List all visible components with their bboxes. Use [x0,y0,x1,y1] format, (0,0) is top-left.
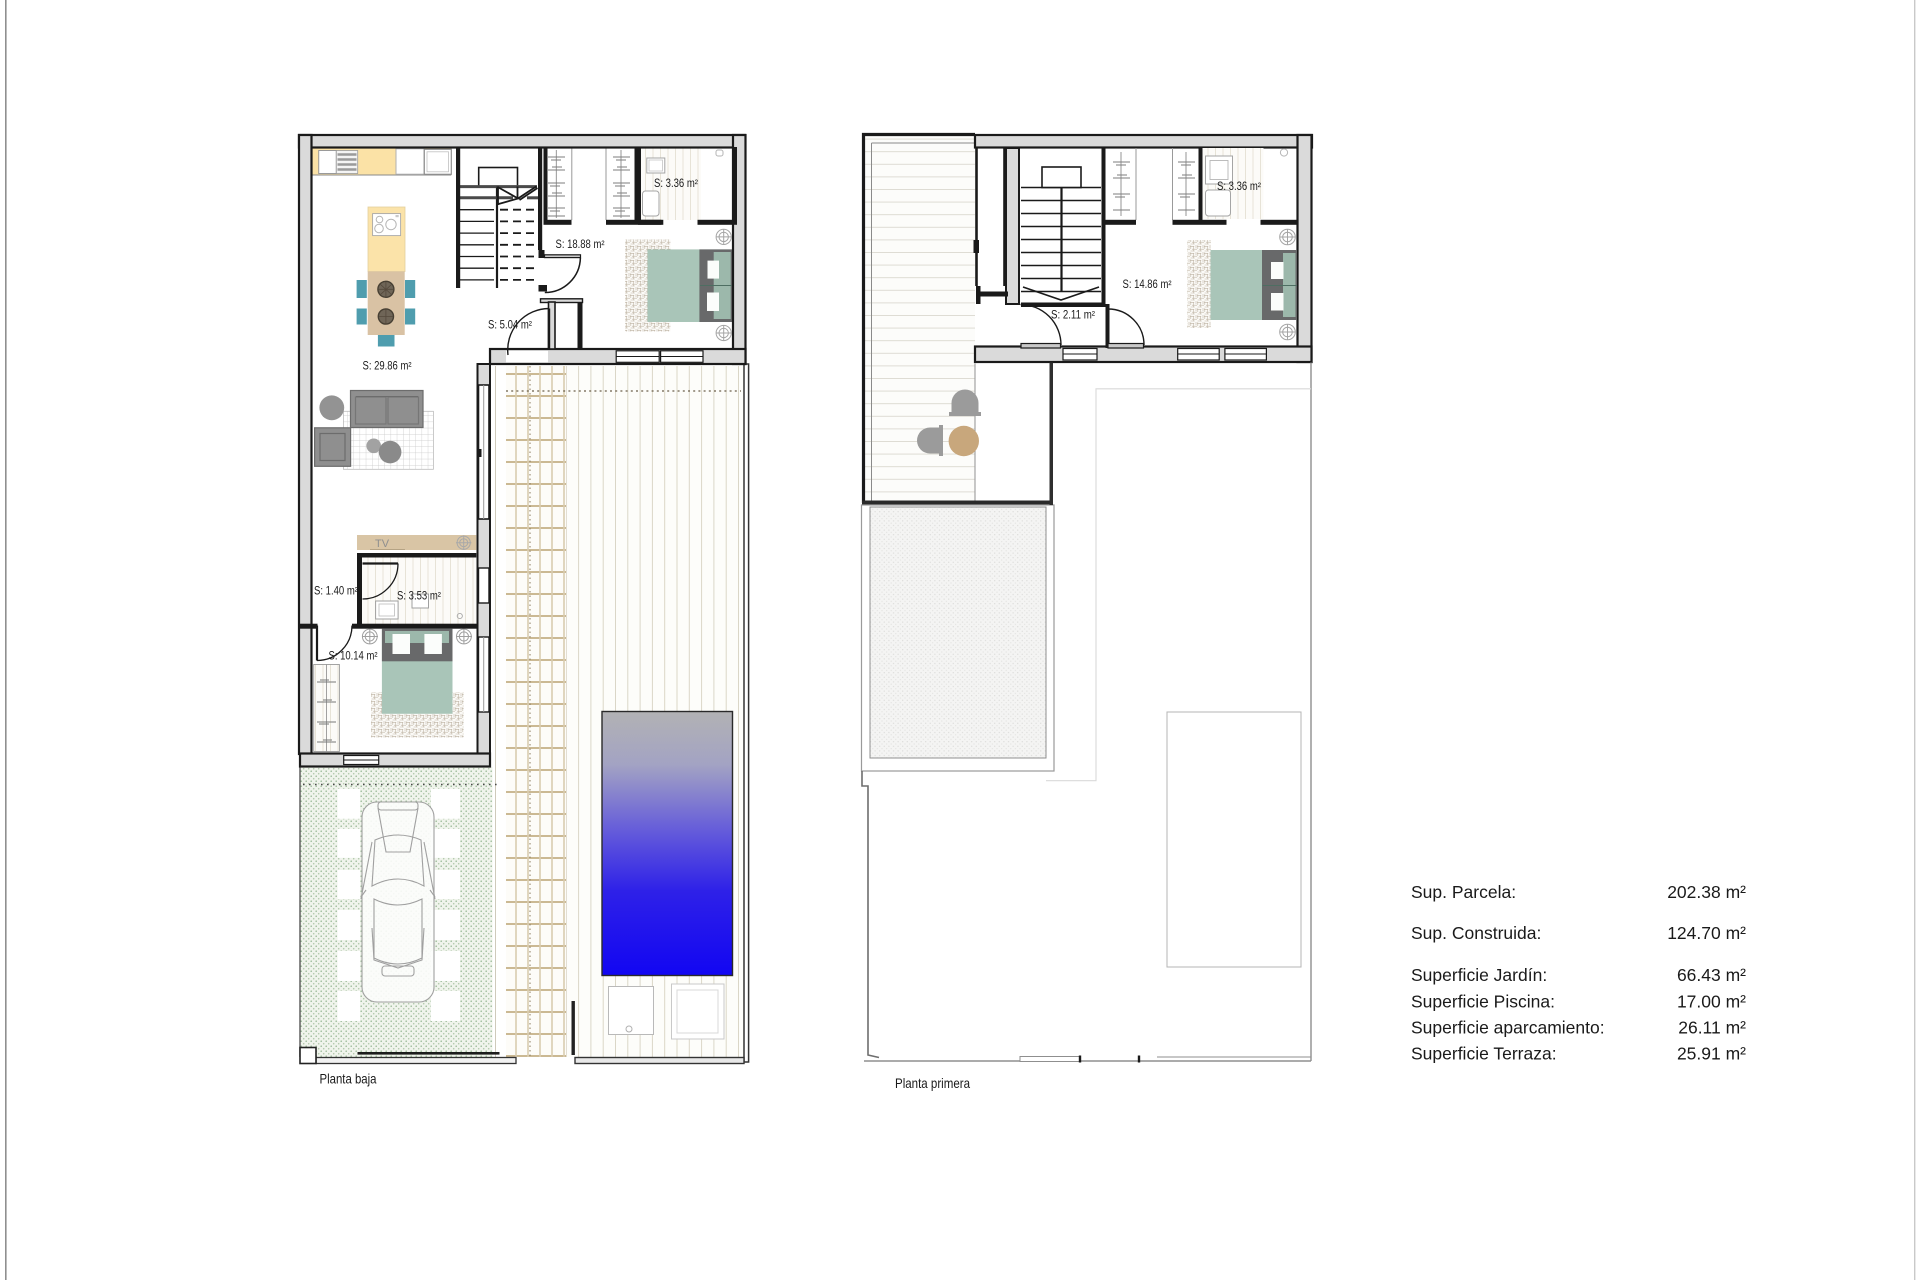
svg-text:S: 3.36 m²: S: 3.36 m² [654,178,698,190]
svg-text:Superficie Terraza:: Superficie Terraza: [1411,1044,1557,1064]
svg-text:Planta baja: Planta baja [320,1071,377,1087]
svg-text:26.11 m²: 26.11 m² [1678,1018,1746,1038]
svg-text:S: 29.86 m²: S: 29.86 m² [363,361,412,373]
svg-text:17.00 m²: 17.00 m² [1677,992,1746,1012]
svg-text:Superficie Piscina:: Superficie Piscina: [1411,992,1555,1012]
svg-text:124.70 m²: 124.70 m² [1667,923,1746,943]
svg-text:TV: TV [375,538,390,550]
svg-text:25.91 m²: 25.91 m² [1677,1044,1746,1064]
svg-text:S: 1.40 m²: S: 1.40 m² [314,586,358,598]
svg-text:S: 14.86 m²: S: 14.86 m² [1123,279,1172,291]
svg-text:66.43 m²: 66.43 m² [1677,965,1746,985]
svg-text:S: 3.36 m²: S: 3.36 m² [1217,181,1261,193]
svg-text:S: 18.88 m²: S: 18.88 m² [556,239,605,251]
svg-text:S: 10.14 m²: S: 10.14 m² [329,651,378,663]
svg-text:Planta primera: Planta primera [895,1075,970,1091]
svg-text:Sup. Construida:: Sup. Construida: [1411,923,1541,943]
svg-text:Superficie aparcamiento:: Superficie aparcamiento: [1411,1018,1605,1038]
svg-text:202.38 m²: 202.38 m² [1667,882,1746,902]
svg-text:Superficie Jardín:: Superficie Jardín: [1411,965,1547,985]
svg-text:Sup. Parcela:: Sup. Parcela: [1411,882,1516,902]
svg-text:S: 5.04 m²: S: 5.04 m² [488,320,532,332]
svg-text:S: 3.53 m²: S: 3.53 m² [397,591,441,603]
svg-text:S: 2.11 m²: S: 2.11 m² [1051,310,1095,322]
